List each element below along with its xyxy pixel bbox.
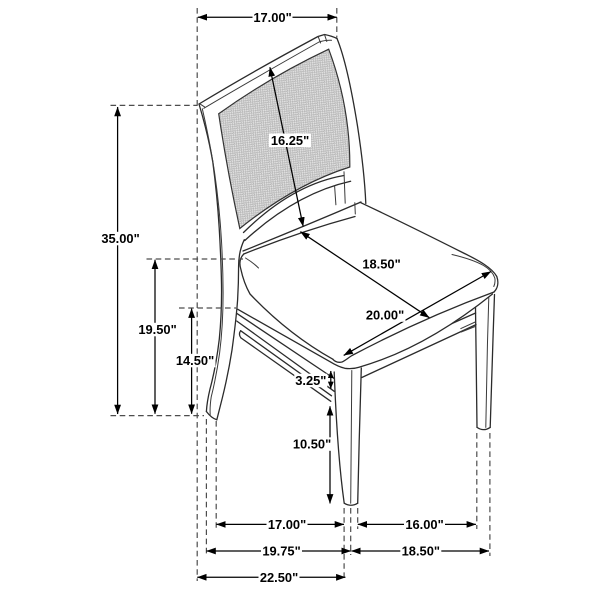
svg-text:17.00": 17.00" bbox=[268, 517, 306, 532]
svg-text:35.00": 35.00" bbox=[101, 231, 139, 246]
svg-text:19.50": 19.50" bbox=[138, 322, 176, 337]
svg-text:16.00": 16.00" bbox=[405, 517, 443, 532]
svg-text:16.25": 16.25" bbox=[271, 133, 309, 148]
svg-text:22.50": 22.50" bbox=[260, 570, 298, 585]
svg-text:18.50": 18.50" bbox=[402, 544, 440, 559]
svg-text:19.75": 19.75" bbox=[262, 544, 300, 559]
svg-text:20.00": 20.00" bbox=[366, 308, 404, 323]
svg-text:17.00": 17.00" bbox=[253, 10, 291, 25]
svg-text:10.50": 10.50" bbox=[293, 437, 331, 452]
svg-text:3.25": 3.25" bbox=[295, 373, 326, 388]
svg-text:18.50": 18.50" bbox=[362, 257, 400, 272]
svg-text:14.50": 14.50" bbox=[176, 353, 214, 368]
